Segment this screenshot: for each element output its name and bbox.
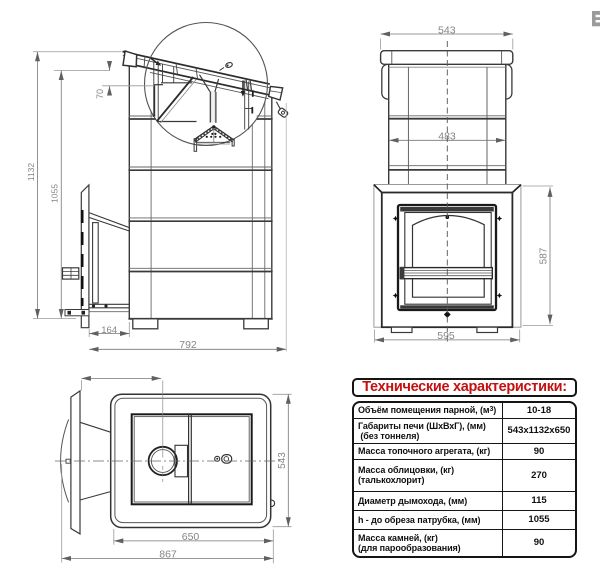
svg-text:70: 70 [95, 89, 105, 99]
svg-text:587: 587 [539, 247, 550, 264]
svg-text:1132: 1132 [26, 163, 36, 182]
svg-text:1055: 1055 [50, 184, 60, 203]
svg-text:650: 650 [182, 531, 200, 543]
svg-text:792: 792 [179, 339, 197, 351]
svg-text:543: 543 [438, 25, 456, 37]
svg-text:543: 543 [277, 452, 288, 469]
svg-text:595: 595 [437, 330, 455, 342]
svg-text:164: 164 [101, 325, 117, 336]
svg-text:867: 867 [159, 548, 177, 560]
